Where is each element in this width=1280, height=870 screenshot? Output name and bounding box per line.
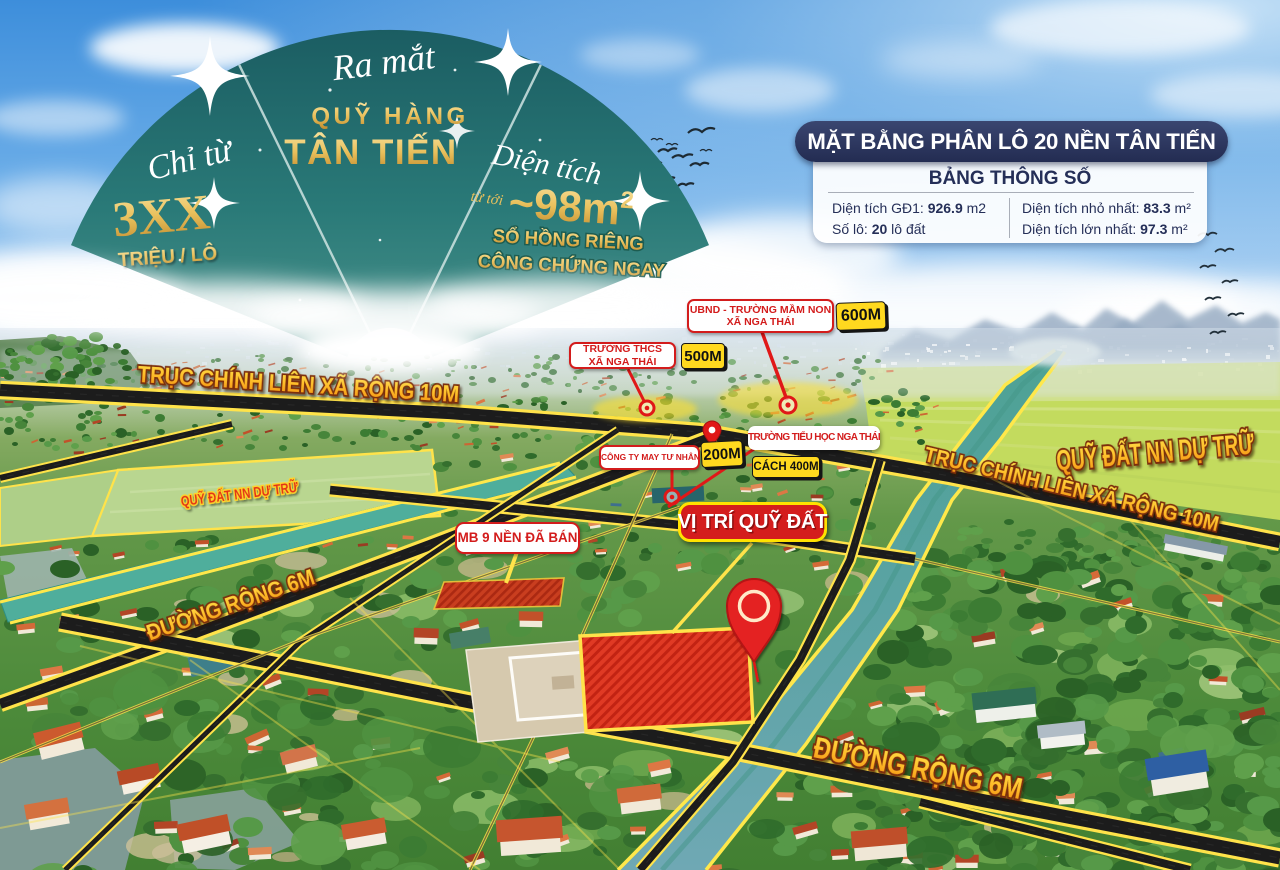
svg-text:QUỸ HÀNG: QUỸ HÀNG [311,102,468,130]
svg-text:TÂN TIẾN: TÂN TIẾN [284,132,457,172]
svg-text:3XX: 3XX [110,183,212,247]
